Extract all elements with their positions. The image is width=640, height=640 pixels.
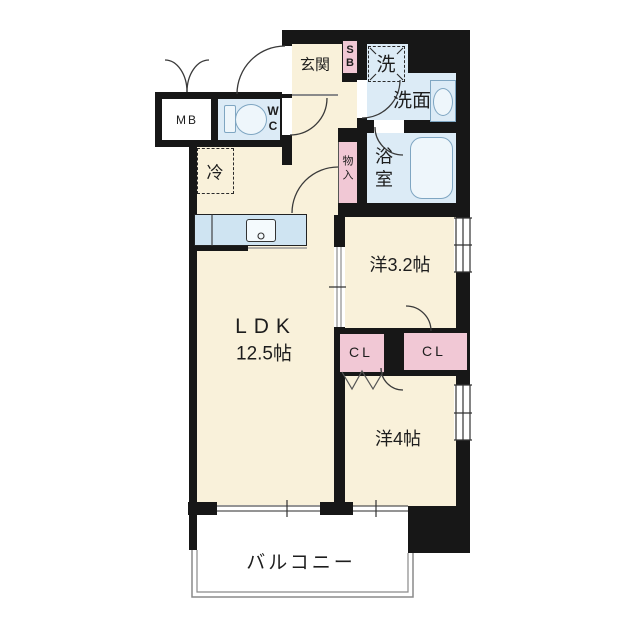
balcony-slider-yo4 <box>353 500 408 517</box>
window-yo32 <box>454 218 472 272</box>
ldk-name-label: LDK <box>235 315 297 339</box>
yo4-label: 洋4帖 <box>375 425 421 451</box>
ldk-door-arc <box>292 167 338 213</box>
mb-door-left-arc <box>165 60 187 92</box>
mb-label: MB <box>176 113 198 127</box>
genkan-label: 玄関 <box>300 54 330 75</box>
balcony-slider-ldk <box>217 500 320 517</box>
window-yo4 <box>454 385 472 440</box>
yo32-closet-door-arc <box>406 306 431 331</box>
washer-label: 洗 <box>376 50 395 77</box>
fridge-label: 冷 <box>207 159 224 184</box>
entrance-door-arc <box>237 46 285 94</box>
annotations <box>0 0 640 640</box>
faucet <box>258 233 264 239</box>
monoire-label: 物入 <box>343 155 354 184</box>
yo4-door-arc <box>381 368 403 390</box>
closet-right-label: CL <box>422 343 446 359</box>
closet-bifold-zigzag <box>342 371 383 389</box>
floor-plan: 玄関 SB 洗 洗面 浴室 物入 WC MB 冷 LDK 12.5帖 洋3.2帖… <box>0 0 640 640</box>
counter-wall-stub <box>194 246 248 251</box>
balcony-label: バルコニー <box>246 548 356 575</box>
bath-label: 浴室 <box>375 146 393 191</box>
shoebox-label: SB <box>346 44 354 70</box>
wc-door-arc <box>290 98 327 135</box>
mb-door-right-arc <box>187 60 209 92</box>
senmen-label: 洗面 <box>393 86 431 113</box>
wc-label: WC <box>267 104 278 134</box>
yo32-label: 洋3.2帖 <box>369 251 430 277</box>
ldk-size-label: 12.5帖 <box>236 339 292 366</box>
closet-left-label: CL <box>349 344 373 360</box>
